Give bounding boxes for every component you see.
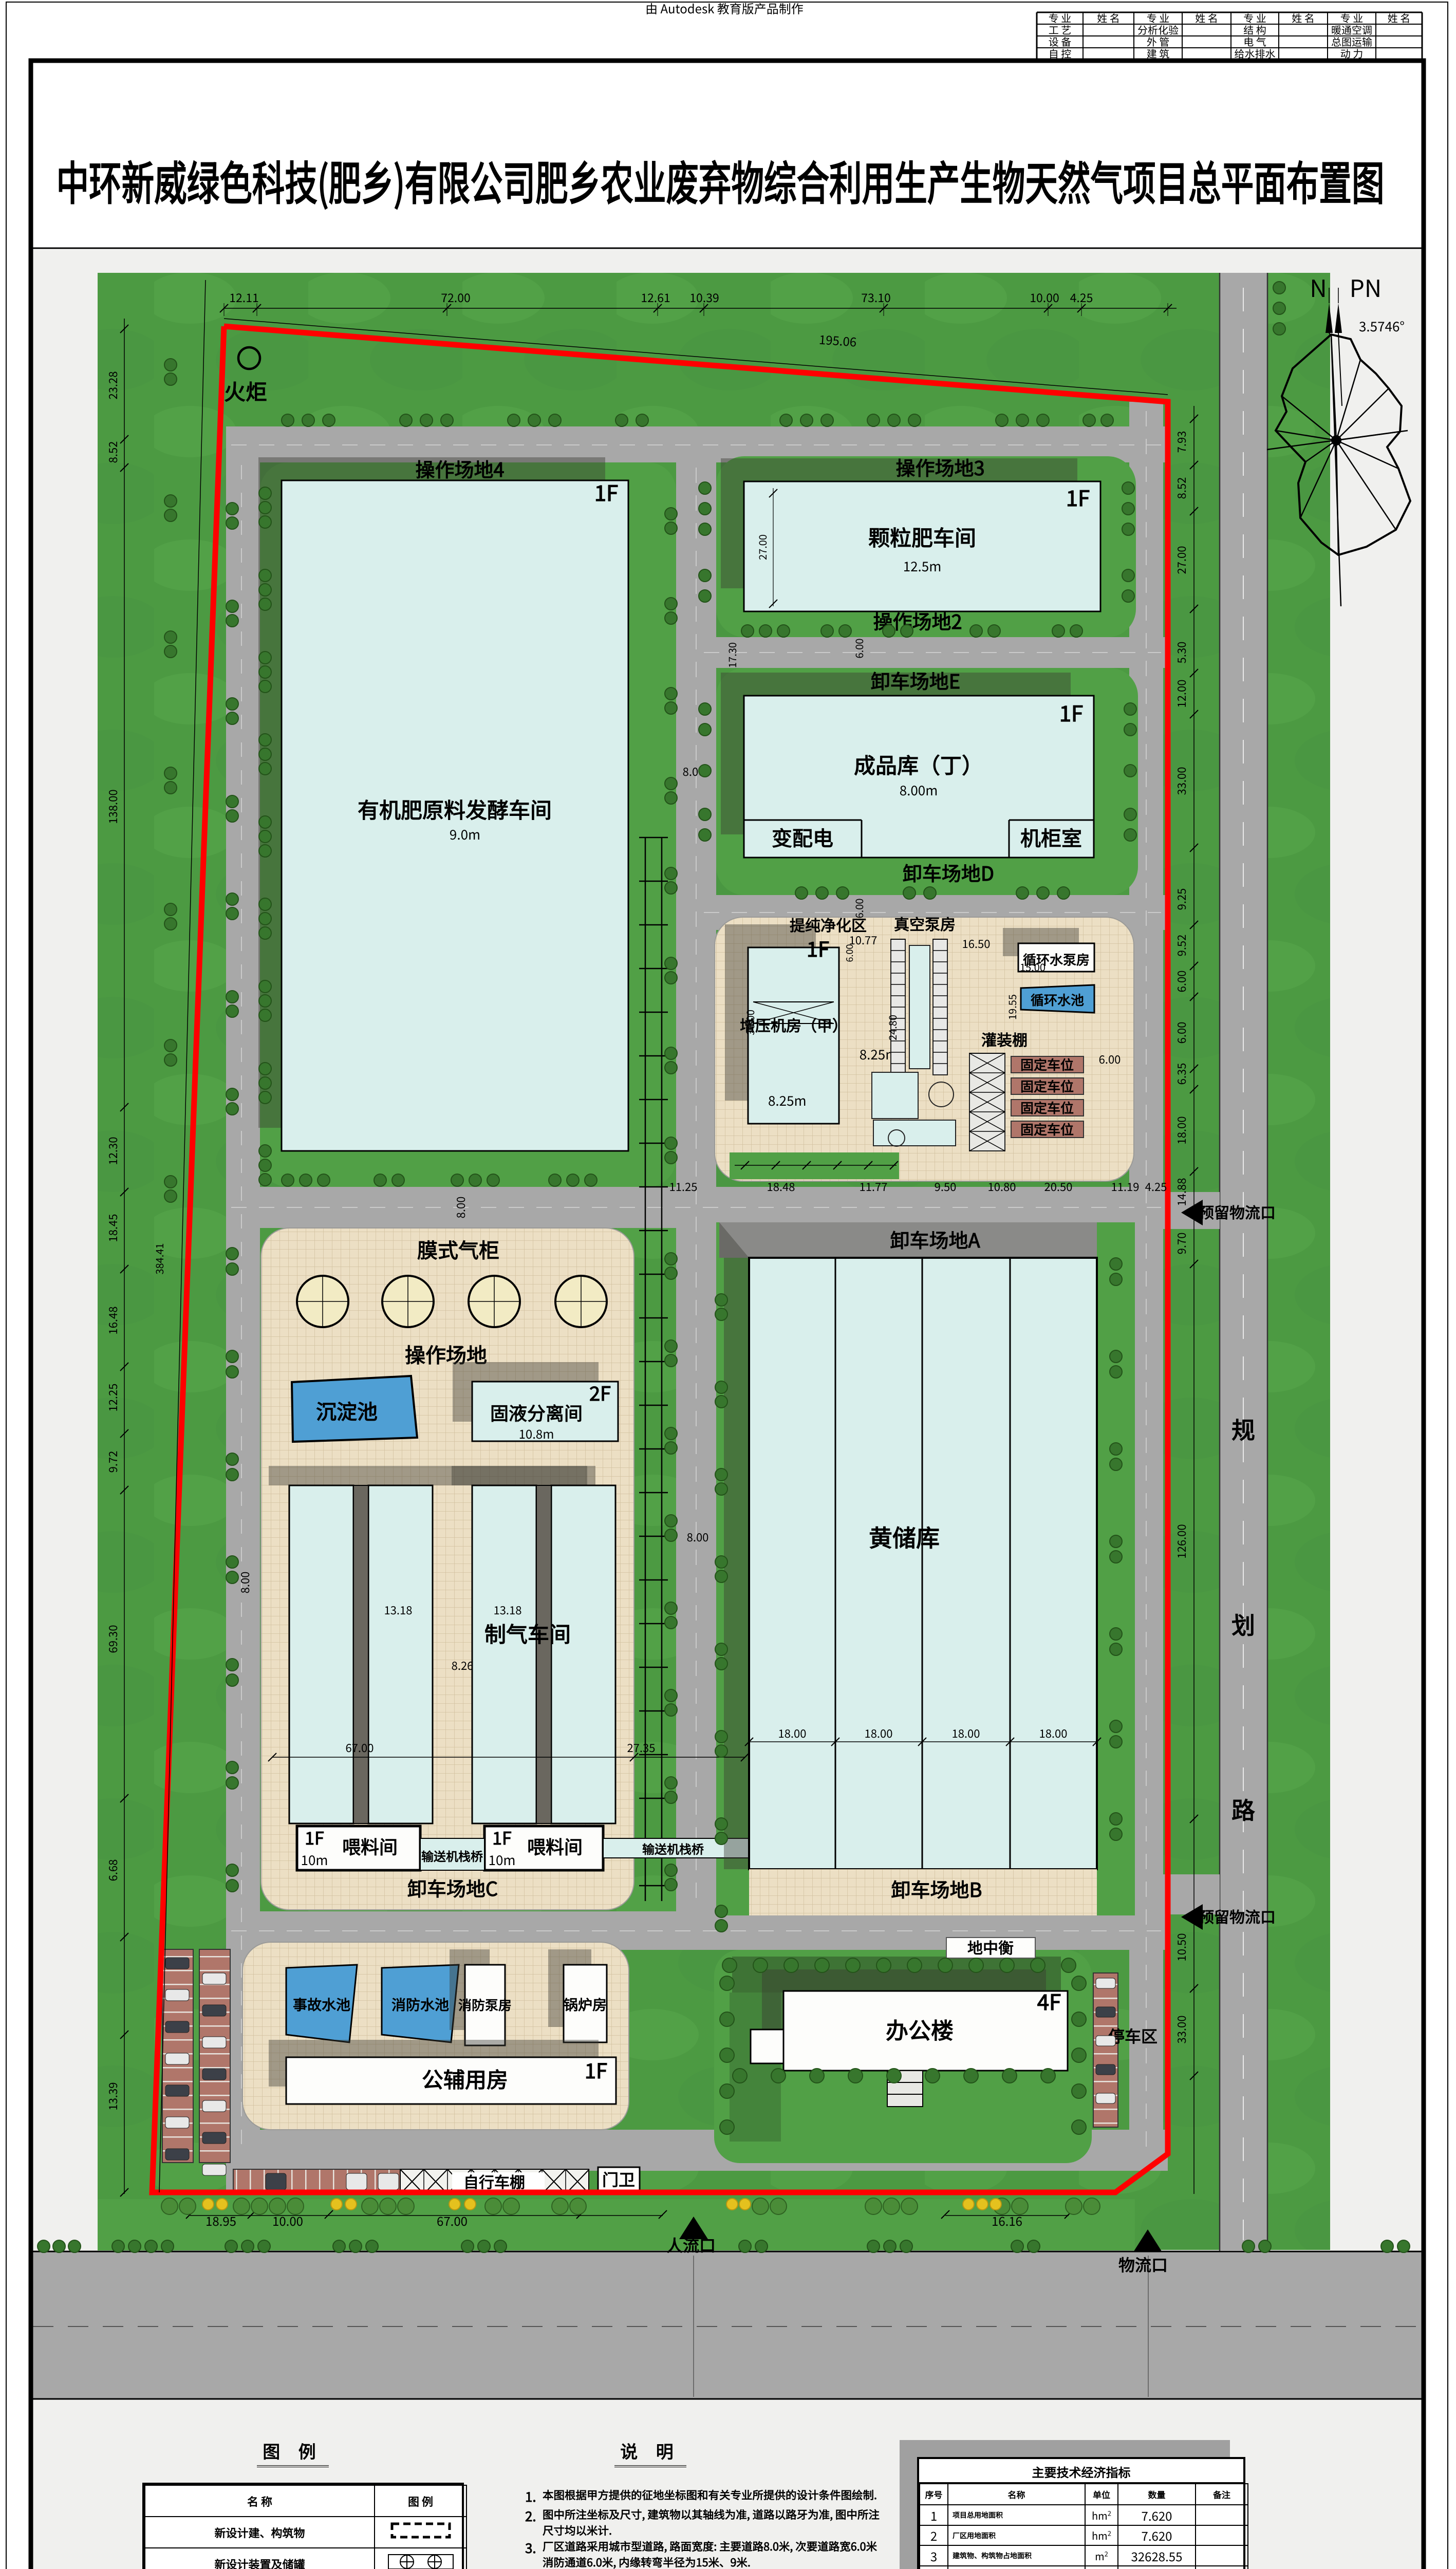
svg-text:9.0m: 9.0m bbox=[450, 825, 480, 844]
svg-text:颗粒肥车间: 颗粒肥车间 bbox=[868, 521, 976, 552]
svg-text:建 筑: 建 筑 bbox=[1147, 46, 1169, 61]
svg-text:72.00: 72.00 bbox=[441, 288, 470, 306]
svg-text:27.00: 27.00 bbox=[1173, 546, 1189, 574]
svg-text:18.00: 18.00 bbox=[1173, 1116, 1189, 1145]
svg-text:16.48: 16.48 bbox=[104, 1307, 121, 1335]
svg-text:27.35: 27.35 bbox=[627, 1739, 656, 1756]
svg-text:13.39: 13.39 bbox=[104, 2082, 121, 2111]
svg-text:2F: 2F bbox=[589, 1378, 611, 1406]
svg-text:18.48: 18.48 bbox=[767, 1178, 795, 1195]
svg-text:33.00: 33.00 bbox=[1173, 767, 1189, 795]
svg-text:12.5m: 12.5m bbox=[903, 556, 942, 575]
svg-text:10m: 10m bbox=[301, 1850, 328, 1869]
svg-text:沉淀池: 沉淀池 bbox=[316, 1395, 378, 1425]
svg-text:1F: 1F bbox=[594, 476, 619, 508]
svg-text:1F: 1F bbox=[1066, 481, 1090, 513]
svg-text:8.00m: 8.00m bbox=[900, 780, 938, 799]
svg-text:姓 名: 姓 名 bbox=[1292, 10, 1314, 25]
svg-text:1F: 1F bbox=[585, 2055, 607, 2084]
svg-text:8.00: 8.00 bbox=[236, 1572, 253, 1594]
svg-text:6.68: 6.68 bbox=[104, 1859, 121, 1882]
svg-text:办公楼: 办公楼 bbox=[886, 2013, 954, 2045]
svg-text:4.25: 4.25 bbox=[1070, 288, 1093, 306]
svg-text:9.72: 9.72 bbox=[104, 1451, 121, 1473]
svg-text:10.80: 10.80 bbox=[988, 1178, 1016, 1195]
svg-text:5.30: 5.30 bbox=[1173, 642, 1189, 664]
svg-text:N: N bbox=[1310, 270, 1327, 304]
svg-text:138.00: 138.00 bbox=[104, 789, 121, 824]
svg-text:成品库（丁）: 成品库（丁） bbox=[854, 749, 983, 780]
svg-text:13.18: 13.18 bbox=[494, 1602, 522, 1618]
svg-text:384.41: 384.41 bbox=[152, 1243, 166, 1274]
svg-text:17.30: 17.30 bbox=[724, 642, 739, 668]
svg-text:输送机栈桥: 输送机栈桥 bbox=[642, 1839, 704, 1857]
svg-text:由 Autodesk 教育版产品制作: 由 Autodesk 教育版产品制作 bbox=[645, 0, 804, 17]
svg-text:18.95: 18.95 bbox=[206, 2211, 236, 2229]
svg-text:6.00: 6.00 bbox=[1173, 971, 1189, 993]
svg-text:卸车场地B: 卸车场地B bbox=[891, 1874, 982, 1903]
svg-text:动 力: 动 力 bbox=[1340, 46, 1363, 61]
svg-text:路: 路 bbox=[1231, 1792, 1256, 1826]
svg-text:9.70: 9.70 bbox=[1173, 1233, 1189, 1255]
svg-text:20.50: 20.50 bbox=[1044, 1178, 1073, 1195]
svg-text:12.00: 12.00 bbox=[1173, 680, 1189, 708]
svg-text:卸车场地A: 卸车场地A bbox=[890, 1225, 980, 1253]
svg-text:姓 名: 姓 名 bbox=[1195, 10, 1218, 25]
svg-text:1F: 1F bbox=[492, 1825, 512, 1850]
svg-text:69.30: 69.30 bbox=[104, 1625, 121, 1653]
svg-text:8.25m: 8.25m bbox=[768, 1091, 807, 1110]
svg-text:8.00: 8.00 bbox=[687, 1529, 709, 1545]
svg-text:固定车位: 固定车位 bbox=[1020, 1098, 1074, 1117]
svg-text:7.93: 7.93 bbox=[1173, 431, 1189, 453]
svg-text:变配电: 变配电 bbox=[772, 822, 833, 852]
svg-text:规: 规 bbox=[1231, 1412, 1255, 1446]
svg-text:公辅用房: 公辅用房 bbox=[422, 2063, 508, 2094]
svg-text:8.00: 8.00 bbox=[452, 1197, 469, 1219]
svg-text:8.26: 8.26 bbox=[452, 1657, 474, 1673]
svg-text:27.00: 27.00 bbox=[755, 534, 770, 560]
svg-text:真空泵房: 真空泵房 bbox=[894, 912, 956, 935]
svg-text:膜式气柜: 膜式气柜 bbox=[417, 1234, 499, 1264]
svg-text:6.00: 6.00 bbox=[843, 944, 856, 962]
svg-text:10.8m: 10.8m bbox=[519, 1424, 554, 1442]
svg-text:33.00: 33.00 bbox=[1173, 2016, 1189, 2044]
svg-text:8.52: 8.52 bbox=[1173, 477, 1189, 499]
svg-text:输送机栈桥: 输送机栈桥 bbox=[421, 1847, 483, 1865]
svg-text:锅炉房: 锅炉房 bbox=[564, 1994, 607, 2015]
svg-text:固定车位: 固定车位 bbox=[1020, 1076, 1074, 1095]
svg-text:黄储库: 黄储库 bbox=[869, 1520, 940, 1554]
svg-text:18.00: 18.00 bbox=[1039, 1725, 1068, 1741]
svg-text:67.00: 67.00 bbox=[346, 1739, 374, 1756]
svg-text:23.28: 23.28 bbox=[104, 371, 121, 400]
svg-text:11.19: 11.19 bbox=[1111, 1178, 1140, 1195]
svg-text:火炬: 火炬 bbox=[224, 375, 267, 406]
svg-text:12.25: 12.25 bbox=[104, 1384, 121, 1412]
svg-text:卸车场地D: 卸车场地D bbox=[903, 858, 994, 886]
svg-text:18.00: 18.00 bbox=[952, 1725, 980, 1741]
svg-text:姓 名: 姓 名 bbox=[1097, 10, 1119, 25]
svg-text:11.77: 11.77 bbox=[860, 1178, 888, 1195]
svg-text:18.00: 18.00 bbox=[778, 1725, 807, 1741]
svg-text:地中衡: 地中衡 bbox=[967, 1935, 1014, 1958]
svg-text:6.00: 6.00 bbox=[1173, 1022, 1189, 1044]
svg-text:喂料间: 喂料间 bbox=[527, 1833, 583, 1859]
svg-text:人流口: 人流口 bbox=[666, 2233, 716, 2257]
svg-text:划: 划 bbox=[1231, 1607, 1255, 1641]
svg-text:11.25: 11.25 bbox=[669, 1178, 698, 1195]
svg-text:126.00: 126.00 bbox=[1173, 1524, 1189, 1558]
svg-text:19.55: 19.55 bbox=[1004, 994, 1019, 1020]
svg-text:3.5746°: 3.5746° bbox=[1359, 317, 1405, 336]
svg-text:24.80: 24.80 bbox=[885, 1015, 900, 1040]
svg-text:18.00: 18.00 bbox=[865, 1725, 893, 1741]
svg-text:10.50: 10.50 bbox=[1173, 1933, 1189, 1962]
svg-text:12.61: 12.61 bbox=[641, 288, 670, 306]
svg-text:14.88: 14.88 bbox=[1173, 1178, 1189, 1206]
svg-text:4.25: 4.25 bbox=[1145, 1178, 1167, 1195]
svg-text:9.50: 9.50 bbox=[935, 1178, 957, 1195]
svg-text:固定车位: 固定车位 bbox=[1020, 1055, 1074, 1074]
svg-text:物流口: 物流口 bbox=[1118, 2252, 1168, 2276]
svg-text:67.00: 67.00 bbox=[437, 2211, 468, 2229]
svg-text:喂料间: 喂料间 bbox=[342, 1833, 398, 1859]
svg-text:1F: 1F bbox=[1059, 697, 1084, 728]
svg-text:12.11: 12.11 bbox=[229, 288, 258, 306]
svg-text:73.10: 73.10 bbox=[861, 288, 890, 306]
svg-text:6.35: 6.35 bbox=[1173, 1063, 1189, 1085]
svg-text:事故水池: 事故水池 bbox=[293, 1994, 350, 2015]
svg-text:9.52: 9.52 bbox=[1173, 935, 1189, 957]
svg-text:6.00: 6.00 bbox=[851, 639, 866, 659]
svg-text:195.06: 195.06 bbox=[818, 330, 857, 350]
svg-text:机柜室: 机柜室 bbox=[1020, 822, 1082, 852]
svg-text:16.50: 16.50 bbox=[962, 935, 991, 952]
svg-text:13.18: 13.18 bbox=[384, 1602, 413, 1618]
svg-text:固定车位: 固定车位 bbox=[1020, 1120, 1074, 1139]
svg-text:1F: 1F bbox=[305, 1825, 324, 1850]
svg-text:卸车场地C: 卸车场地C bbox=[407, 1873, 498, 1902]
svg-text:10.00: 10.00 bbox=[1030, 288, 1059, 306]
svg-text:6.00: 6.00 bbox=[1099, 1051, 1121, 1067]
svg-text:给水排水: 给水排水 bbox=[1235, 46, 1276, 61]
svg-text:卸车场地E: 卸车场地E bbox=[871, 666, 960, 694]
svg-text:36.00: 36.00 bbox=[742, 1010, 757, 1035]
svg-text:姓 名: 姓 名 bbox=[1388, 10, 1410, 25]
svg-text:8.52: 8.52 bbox=[104, 441, 121, 463]
svg-text:自行车棚: 自行车棚 bbox=[463, 2170, 525, 2192]
svg-text:门卫: 门卫 bbox=[602, 2167, 635, 2191]
svg-text:4F: 4F bbox=[1037, 1985, 1061, 2017]
svg-text:15.00: 15.00 bbox=[1020, 959, 1046, 974]
svg-text:循环水池: 循环水池 bbox=[1031, 990, 1084, 1009]
svg-text:10m: 10m bbox=[489, 1850, 516, 1869]
svg-text:10.39: 10.39 bbox=[689, 288, 719, 306]
svg-text:固液分离间: 固液分离间 bbox=[490, 1399, 583, 1426]
svg-text:操作场地3: 操作场地3 bbox=[895, 453, 984, 481]
svg-text:消防泵房: 消防泵房 bbox=[458, 1995, 512, 2014]
svg-text:18.45: 18.45 bbox=[104, 1214, 121, 1242]
svg-text:9.25: 9.25 bbox=[1173, 888, 1189, 910]
svg-text:预留物流口: 预留物流口 bbox=[1199, 1200, 1276, 1223]
svg-text:自 控: 自 控 bbox=[1049, 46, 1071, 61]
svg-text:灌装棚: 灌装棚 bbox=[981, 1028, 1028, 1050]
svg-text:PN: PN bbox=[1350, 270, 1382, 304]
svg-text:操作场地4: 操作场地4 bbox=[415, 454, 504, 482]
svg-text:12.30: 12.30 bbox=[104, 1137, 121, 1165]
svg-text:有机肥原料发酵车间: 有机肥原料发酵车间 bbox=[358, 793, 552, 825]
svg-text:中环新威绿色科技(肥乡)有限公司肥乡农业废弃物综合利用生产生: 中环新威绿色科技(肥乡)有限公司肥乡农业废弃物综合利用生产生物天然气项目总平面布… bbox=[57, 146, 1385, 213]
svg-text:预留物流口: 预留物流口 bbox=[1199, 1905, 1276, 1927]
svg-text:1F: 1F bbox=[807, 933, 829, 963]
svg-text:制气车间: 制气车间 bbox=[484, 1617, 571, 1649]
svg-text:消防水池: 消防水池 bbox=[391, 1994, 449, 2015]
